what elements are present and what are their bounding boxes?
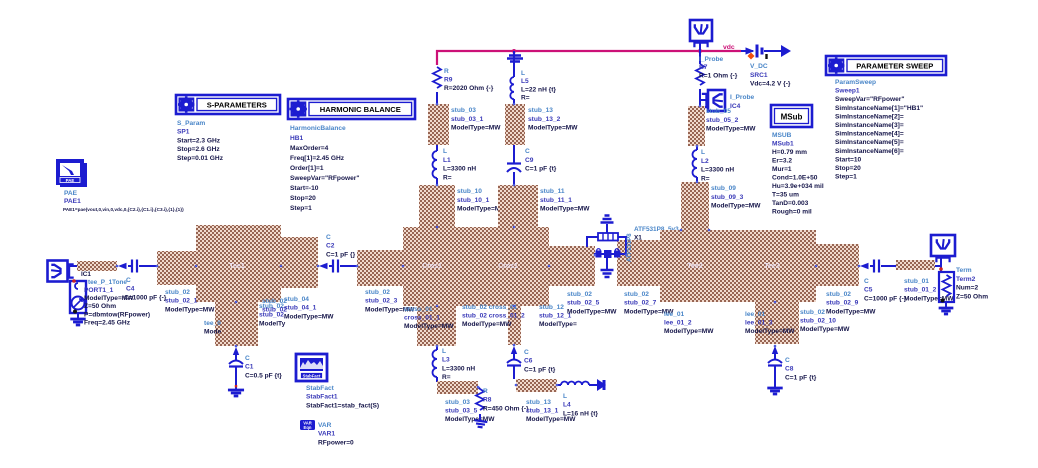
svg-text:C: C	[326, 234, 331, 241]
svg-text:ParamSweep: ParamSweep	[835, 79, 876, 86]
svg-text:vdc: vdc	[723, 44, 735, 51]
svg-text:tee_P_1Tone: tee_P_1Tone	[88, 279, 127, 286]
svg-text:stub_13: stub_13	[526, 399, 551, 406]
svg-text:L2: L2	[701, 158, 709, 165]
svg-text:StabFact: StabFact	[303, 373, 321, 378]
svg-text:Eqn: Eqn	[304, 425, 312, 430]
svg-text:Cros1: Cros1	[422, 263, 442, 270]
svg-text:PAE1=pae(vout,0,vin,0,vdc,0,{C: PAE1=pae(vout,0,vin,0,vdc,0,{C2.i},{C1.i…	[63, 207, 184, 212]
svg-text:L5: L5	[521, 78, 529, 85]
svg-text:C2: C2	[326, 243, 335, 250]
svg-text:stub_09_3: stub_09_3	[711, 194, 744, 201]
svg-text:H=0.79 mm: H=0.79 mm	[772, 149, 807, 156]
svg-text:L: L	[701, 149, 705, 156]
svg-text:Stop=2.6 GHz: Stop=2.6 GHz	[177, 146, 220, 153]
svg-text:C=1000 pF {-}: C=1000 pF {-}	[124, 295, 167, 302]
svg-text:PAE: PAE	[64, 190, 78, 197]
svg-text:stub_02: stub_02	[567, 291, 592, 298]
svg-text:stub_02: stub_02	[165, 289, 190, 296]
svg-text:R=450 Ohm {-}: R=450 Ohm {-}	[483, 405, 529, 412]
svg-text:R=: R=	[521, 95, 530, 102]
svg-text:lee_01: lee_01	[745, 311, 766, 318]
svg-text:R=: R=	[701, 175, 710, 182]
svg-text:L1: L1	[443, 157, 451, 164]
svg-text:L: L	[443, 148, 447, 155]
svg-text:HarmonicBalance: HarmonicBalance	[290, 125, 346, 132]
svg-text:PAE1: PAE1	[64, 198, 81, 205]
svg-text:TanD=0.003: TanD=0.003	[772, 200, 809, 207]
svg-text:C=0.5 pF {t}: C=0.5 pF {t}	[245, 372, 282, 379]
svg-text:ModelType=MW: ModelType=MW	[451, 125, 501, 132]
svg-text:stub_02: stub_02	[826, 291, 851, 298]
svg-text:stub_01_2: stub_01_2	[904, 287, 937, 294]
svg-text:Freq[1]=2.45 GHz: Freq[1]=2.45 GHz	[290, 155, 345, 162]
svg-text:stub_03: stub_03	[445, 399, 470, 406]
svg-text:C: C	[245, 355, 250, 362]
svg-text:C: C	[524, 349, 529, 356]
svg-text:Step=1: Step=1	[835, 174, 857, 181]
svg-text:Step=1: Step=1	[290, 205, 312, 212]
svg-text:ModelType=MW: ModelType=MW	[711, 203, 761, 210]
svg-text:Cros1: Cros1	[498, 263, 518, 270]
svg-text:stub_13_1: stub_13_1	[526, 407, 559, 414]
svg-text:SimInstanceName[5]=: SimInstanceName[5]=	[835, 139, 904, 146]
svg-text:X1: X1	[634, 235, 642, 242]
svg-text:C9: C9	[525, 157, 534, 164]
svg-text:L=22 nH {t}: L=22 nH {t}	[521, 86, 556, 93]
svg-text:MSUB: MSUB	[772, 132, 792, 139]
svg-text:Mode: Mode	[204, 328, 222, 335]
svg-text:SRC1: SRC1	[750, 72, 768, 79]
svg-text:stub_03_5: stub_03_5	[445, 407, 478, 414]
svg-text:P=dbmtow(RFpower): P=dbmtow(RFpower)	[84, 311, 150, 318]
svg-text:Vdc=4.2 V {-}: Vdc=4.2 V {-}	[750, 81, 791, 88]
svg-text:S_Param: S_Param	[177, 120, 205, 127]
svg-text:L=3300 nH: L=3300 nH	[443, 166, 476, 173]
svg-text:StabFact1: StabFact1	[306, 394, 338, 401]
svg-text:Freq=2.45 GHz: Freq=2.45 GHz	[84, 319, 131, 326]
svg-text:Z=50 Ohm: Z=50 Ohm	[84, 303, 116, 310]
svg-text:C: C	[864, 278, 869, 285]
svg-text:T=35 um: T=35 um	[772, 192, 799, 199]
svg-text:PORT1_1: PORT1_1	[84, 287, 114, 294]
svg-text:stub_02_10: stub_02_10	[800, 317, 836, 324]
svg-text:C: C	[126, 277, 131, 284]
svg-text:ModelType=MW: ModelType=MW	[404, 323, 454, 330]
svg-text:lee_01_2: lee_01_2	[664, 319, 692, 326]
svg-text:Num=2: Num=2	[956, 285, 979, 292]
svg-text:ModelTy: ModelTy	[259, 320, 286, 327]
svg-text:IC1: IC1	[81, 271, 91, 278]
svg-text:PAE: PAE	[66, 178, 75, 183]
svg-text:stub_01: stub_01	[904, 278, 929, 285]
svg-text:Rough=0 mil: Rough=0 mil	[772, 209, 812, 216]
svg-text:PARAMETER SWEEP: PARAMETER SWEEP	[856, 61, 933, 70]
svg-text:HARMONIC BALANCE: HARMONIC BALANCE	[320, 105, 401, 114]
svg-text:C4: C4	[126, 286, 135, 293]
svg-text:lee_01: lee_01	[664, 311, 685, 318]
svg-text:SimInstanceName[6]=: SimInstanceName[6]=	[835, 148, 904, 155]
svg-text:R9: R9	[444, 77, 453, 84]
svg-text:L: L	[563, 393, 567, 400]
svg-text:ModelType=MW: ModelType=MW	[706, 126, 756, 133]
svg-text:Term: Term	[956, 267, 972, 274]
svg-text:MSub1: MSub1	[772, 141, 794, 148]
svg-text:SweepVar="RFpower": SweepVar="RFpower"	[290, 175, 359, 182]
svg-text:C: C	[525, 148, 530, 155]
svg-text:lee_01_3: lee_01_3	[745, 319, 773, 326]
svg-text:stub_02_7: stub_02_7	[624, 300, 657, 307]
svg-text:ATF531P8: ATF531P8	[627, 233, 633, 262]
svg-text:ModelType=MW: ModelType=MW	[528, 125, 578, 132]
svg-text:ModelType=MW: ModelType=MW	[462, 321, 512, 328]
svg-text:ModelType=MW: ModelType=MW	[284, 313, 334, 320]
svg-text:L=3300 nH: L=3300 nH	[442, 365, 475, 372]
svg-text:R: R	[444, 68, 449, 75]
svg-text:StabFact: StabFact	[306, 385, 335, 392]
svg-text:C=1 pF {t}: C=1 pF {t}	[525, 166, 557, 173]
svg-text:SimInstanceName[3]=: SimInstanceName[3]=	[835, 122, 904, 129]
svg-text:ModelType=MW: ModelType=MW	[800, 326, 850, 333]
svg-text:Mur=1: Mur=1	[772, 166, 792, 173]
svg-text:stub_02 cross_01: stub_02 cross_01	[462, 304, 518, 311]
svg-text:Er=3.2: Er=3.2	[772, 158, 792, 165]
svg-text:cross_01_1: cross_01_1	[404, 314, 440, 321]
svg-text:Hu=3.9e+034 mil: Hu=3.9e+034 mil	[772, 183, 824, 190]
svg-text:SweepVar="RFpower": SweepVar="RFpower"	[835, 96, 904, 103]
svg-text:L3: L3	[442, 357, 450, 364]
svg-text:I_Probe: I_Probe	[699, 56, 724, 63]
svg-text:Sweep1: Sweep1	[835, 88, 860, 95]
svg-text:stub_12: stub_12	[539, 304, 564, 311]
svg-text:stub_02_5: stub_02_5	[567, 300, 600, 307]
svg-text:R: R	[483, 388, 488, 395]
svg-text:ModelType=: ModelType=	[539, 321, 577, 328]
svg-text:C8: C8	[785, 366, 794, 373]
svg-text:L: L	[521, 70, 525, 77]
svg-text:ModelType=MW: ModelType=MW	[745, 328, 795, 335]
svg-text:stub_10: stub_10	[457, 188, 482, 195]
svg-text:C=1000 pF {-}: C=1000 pF {-}	[864, 295, 907, 302]
svg-text:Start=10: Start=10	[835, 156, 862, 163]
svg-text:C=1 pF {t}: C=1 pF {t}	[524, 366, 556, 373]
svg-text:stub_02_3: stub_02_3	[365, 298, 398, 305]
svg-text:L4: L4	[563, 402, 571, 409]
svg-text:VAR: VAR	[318, 422, 332, 429]
svg-text:Order[1]=1: Order[1]=1	[290, 165, 324, 172]
svg-text:stub_04_1: stub_04_1	[284, 305, 317, 312]
svg-text:Z=50 Ohm: Z=50 Ohm	[956, 293, 988, 300]
svg-text:RFpower=0: RFpower=0	[318, 439, 354, 446]
svg-text:stub_02: stub_02	[365, 289, 390, 296]
svg-text:stub_03_1: stub_03_1	[451, 116, 484, 123]
svg-text:R=: R=	[443, 174, 452, 181]
svg-text:I_Probe: I_Probe	[730, 94, 755, 101]
svg-text:stub_09: stub_09	[711, 185, 736, 192]
svg-text:stub_02: stub_02	[800, 309, 825, 316]
svg-text:stub_03: stub_03	[451, 107, 476, 114]
svg-text:C6: C6	[524, 358, 533, 365]
svg-text:S-PARAMETERS: S-PARAMETERS	[207, 100, 267, 109]
svg-text:R=: R=	[442, 374, 451, 381]
svg-text:Tee1: Tee1	[229, 263, 245, 270]
svg-text:SP1: SP1	[177, 129, 190, 136]
svg-text:L=3300 nH: L=3300 nH	[701, 167, 734, 174]
svg-text:stub_04: stub_04	[284, 296, 309, 303]
svg-text:R=1 Ohm {-}: R=1 Ohm {-}	[699, 72, 738, 79]
svg-text:stub_05_2: stub_05_2	[706, 117, 739, 124]
svg-text:L: L	[442, 348, 446, 355]
svg-text:Start=2.3 GHz: Start=2.3 GHz	[177, 137, 221, 144]
svg-text:MaxOrder=4: MaxOrder=4	[290, 145, 329, 152]
svg-text:C5: C5	[864, 287, 873, 294]
svg-text:SimInstanceName[2]=: SimInstanceName[2]=	[835, 113, 904, 120]
svg-text:Start=-10: Start=-10	[290, 185, 319, 192]
svg-text:Stop=20: Stop=20	[290, 195, 316, 202]
svg-text:IC4: IC4	[730, 103, 741, 110]
svg-text:stub_13_2: stub_13_2	[528, 116, 561, 123]
svg-text:ModelType=MW: ModelType=MW	[165, 306, 215, 313]
svg-text:C=1 pF {t}: C=1 pF {t}	[785, 374, 817, 381]
svg-text:SimInstanceName[4]=: SimInstanceName[4]=	[835, 131, 904, 138]
svg-text:R=2020 Ohm {-}: R=2020 Ohm {-}	[444, 85, 494, 92]
svg-text:C=1 pF {}: C=1 pF {}	[326, 251, 356, 258]
svg-text:stub_13: stub_13	[528, 107, 553, 114]
svg-text:StabFact1=stab_fact(S): StabFact1=stab_fact(S)	[306, 402, 379, 409]
svg-text:stub_11: stub_11	[540, 188, 565, 195]
svg-text:ModelType=MW: ModelType=MW	[826, 308, 876, 315]
svg-text:C: C	[785, 357, 790, 364]
svg-text:Step=0.01 GHz: Step=0.01 GHz	[177, 155, 224, 162]
svg-text:stub_05: stub_05	[706, 108, 731, 115]
svg-text:HB1: HB1	[290, 135, 304, 142]
svg-text:Cond=1.0E+50: Cond=1.0E+50	[772, 175, 818, 182]
svg-text:ModelType=MW: ModelType=MW	[567, 308, 617, 315]
svg-text:L=16 nH {t}: L=16 nH {t}	[563, 410, 598, 417]
svg-text:stub_02: stub_02	[624, 291, 649, 298]
svg-text:R8: R8	[483, 397, 492, 404]
svg-text:ModelType=MW: ModelType=MW	[445, 416, 495, 423]
svg-text:Tee3: Tee3	[764, 263, 780, 270]
svg-text:stub_11_1: stub_11_1	[540, 197, 572, 204]
svg-text:stub_02 cross_01_2: stub_02 cross_01_2	[462, 312, 525, 319]
svg-text:stub_10_1: stub_10_1	[457, 197, 490, 204]
svg-text:ModelType=MW: ModelType=MW	[540, 206, 590, 213]
svg-text:stub_02_1: stub_02_1	[165, 298, 198, 305]
svg-text:V_DC: V_DC	[750, 63, 768, 70]
svg-text:ModelType=MW: ModelType=MW	[664, 328, 714, 335]
svg-text:C1: C1	[245, 364, 254, 371]
svg-text:Tee2: Tee2	[687, 263, 703, 270]
svg-text:cross_01: cross_01	[404, 306, 433, 313]
svg-text:R7: R7	[699, 64, 708, 71]
svg-text:tee_0: tee_0	[204, 320, 221, 327]
svg-text:SimInstanceName[1]="HB1": SimInstanceName[1]="HB1"	[835, 105, 923, 112]
svg-text:Stop=20: Stop=20	[835, 165, 861, 172]
svg-text:MSub: MSub	[781, 113, 803, 122]
svg-text:stub_02_9: stub_02_9	[826, 300, 859, 307]
svg-text:Term2: Term2	[956, 276, 976, 283]
svg-text:VAR1: VAR1	[318, 431, 335, 438]
